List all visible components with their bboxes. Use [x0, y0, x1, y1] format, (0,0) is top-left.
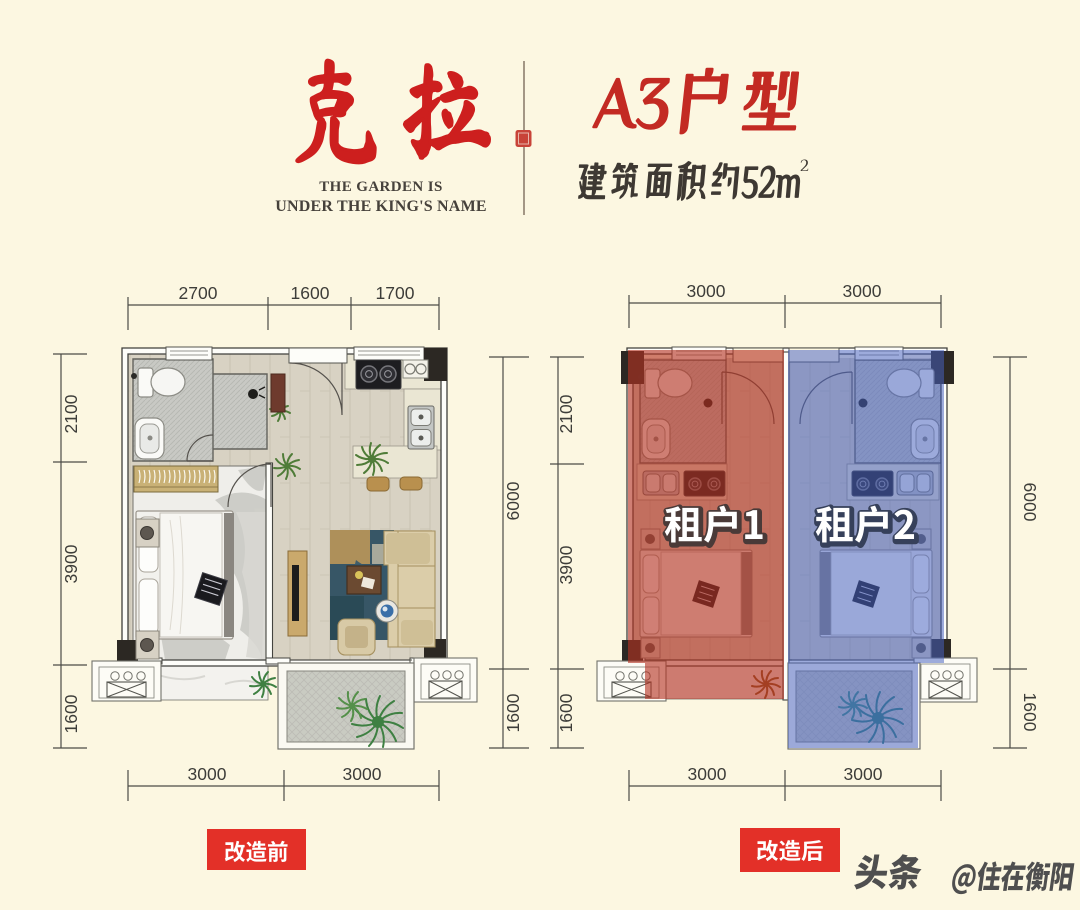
- svg-text:3900: 3900: [556, 545, 576, 584]
- svg-text:3000: 3000: [343, 764, 382, 784]
- svg-text:3000: 3000: [687, 281, 726, 301]
- svg-text:3000: 3000: [688, 764, 727, 784]
- svg-text:3900: 3900: [61, 544, 81, 583]
- svg-text:1600: 1600: [61, 694, 81, 733]
- svg-text:2700: 2700: [179, 283, 218, 303]
- svg-text:1600: 1600: [291, 283, 330, 303]
- svg-text:6000: 6000: [503, 481, 523, 520]
- svg-text:3000: 3000: [843, 281, 882, 301]
- svg-text:1600: 1600: [556, 693, 576, 732]
- svg-text:1600: 1600: [503, 693, 523, 732]
- svg-text:3000: 3000: [188, 764, 227, 784]
- svg-text:2100: 2100: [556, 394, 576, 433]
- svg-text:2100: 2100: [61, 394, 81, 433]
- svg-text:THE GARDEN IS: THE GARDEN IS: [319, 179, 443, 195]
- svg-text:1700: 1700: [376, 283, 415, 303]
- svg-text:1600: 1600: [1020, 693, 1040, 732]
- svg-text:3000: 3000: [844, 764, 883, 784]
- svg-text:6000: 6000: [1020, 483, 1040, 522]
- svg-text:UNDER THE KING'S NAME: UNDER THE KING'S NAME: [275, 198, 487, 215]
